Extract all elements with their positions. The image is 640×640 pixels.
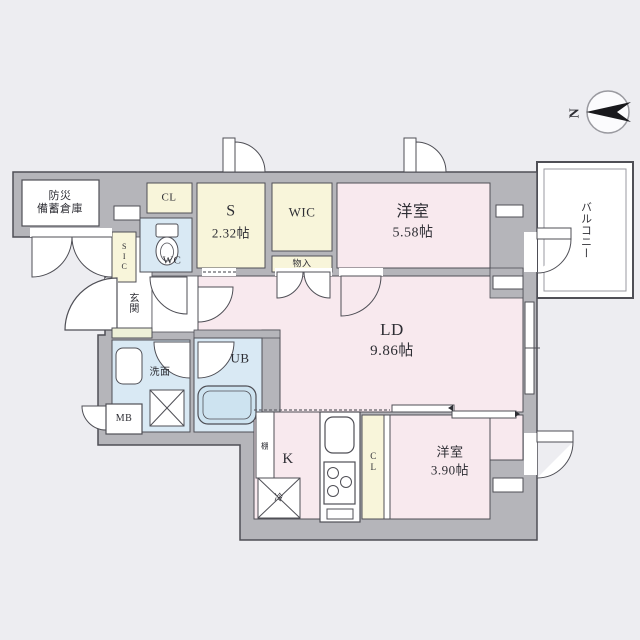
label-wc: WC <box>163 255 182 268</box>
label-cl-bottom: CL <box>368 451 379 473</box>
stove <box>324 462 355 504</box>
label-disaster-storage: 防災 備蓄倉庫 <box>37 190 83 216</box>
window-bedroom2 <box>493 478 523 492</box>
top-door1-arc <box>235 142 265 172</box>
entrance-door-arc <box>65 278 117 330</box>
label-mb: MB <box>116 413 133 425</box>
label-sic: SIC <box>119 242 128 272</box>
top-door2-arc <box>416 142 446 172</box>
label-bedroom1: 洋室 <box>396 204 429 223</box>
label-senmen: 洗面 <box>150 367 171 379</box>
mb-door-arc <box>82 406 106 430</box>
top-door1-leaf <box>223 138 235 172</box>
counter-end <box>327 509 353 519</box>
label-wic: WIC <box>289 204 316 219</box>
label-fridge: 冷 <box>274 493 284 504</box>
storage-door-right-arc <box>72 237 112 277</box>
label-shelf: 棚 <box>261 443 269 452</box>
floor-plan-drawing <box>0 0 640 640</box>
label-ub: UB <box>230 350 249 365</box>
bedroom2-door <box>524 431 573 478</box>
wall-above-bath <box>194 330 280 338</box>
label-service-room-size: 2.32帖 <box>212 225 250 240</box>
label-bedroom2: 洋室 <box>436 444 463 459</box>
label-monoire: 物入 <box>292 259 311 270</box>
label-genkan: 玄関 <box>126 293 138 314</box>
entrance-step <box>112 328 152 338</box>
top-wall-doors <box>223 138 446 172</box>
label-compass-north: N <box>568 108 585 119</box>
label-kitchen: K <box>282 451 293 469</box>
top-door2-leaf <box>404 138 416 172</box>
bedroom1-opening <box>339 268 383 276</box>
label-service-room: S <box>226 203 235 222</box>
window-bedroom1-top <box>496 205 523 217</box>
window-bedroom1-bottom <box>493 276 523 289</box>
label-bedroom2-size: 3.90帖 <box>431 462 469 477</box>
label-balcony: バルコニー <box>579 201 592 259</box>
washbasin <box>116 348 142 384</box>
washer-space <box>150 390 184 426</box>
label-cl-top: CL <box>161 192 176 205</box>
label-ld: LD <box>380 320 404 340</box>
ps-box <box>114 206 140 220</box>
label-bedroom1-size: 5.58帖 <box>393 226 434 243</box>
floor-plan-canvas: 防災 備蓄倉庫 CL S 2.32帖 WIC 物入 洋室 5.58帖 バルコニー… <box>0 0 640 640</box>
cl-bottom-slider <box>384 415 390 519</box>
label-ld-size: 9.86帖 <box>370 343 414 361</box>
kitchen-sink <box>325 417 354 453</box>
bathtub <box>198 386 256 424</box>
compass <box>586 91 631 133</box>
storage-door-left-arc <box>32 237 72 277</box>
